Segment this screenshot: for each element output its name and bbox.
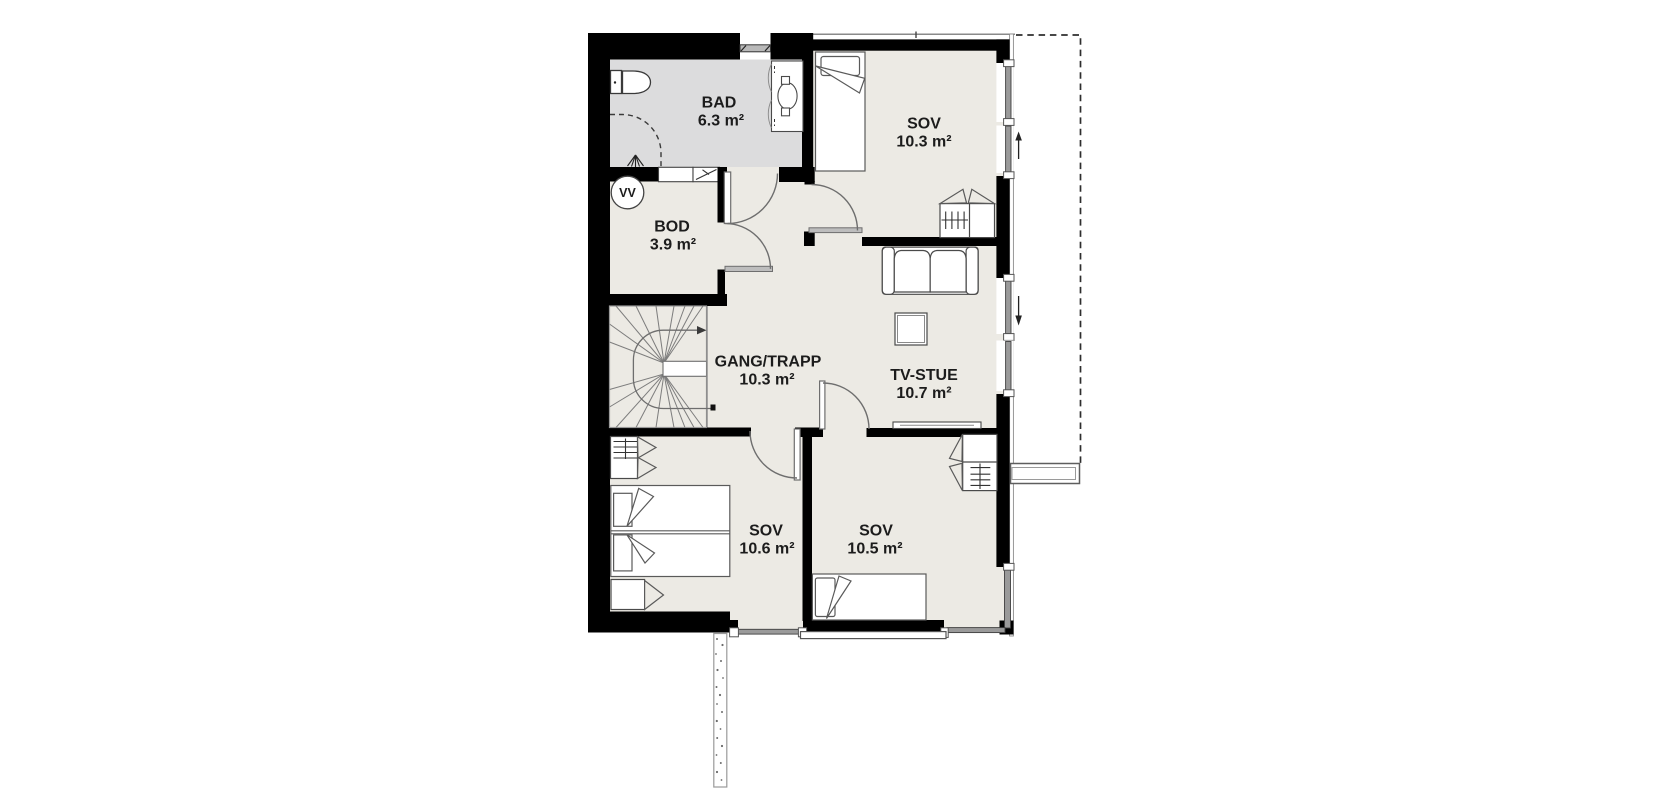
svg-text:BOD: BOD <box>654 219 690 236</box>
svg-text:GANG/TRAPP: GANG/TRAPP <box>715 354 822 371</box>
svg-text:TV-STUE: TV-STUE <box>890 367 958 384</box>
svg-text:6.3 m²: 6.3 m² <box>698 113 744 130</box>
svg-text:VV: VV <box>619 186 636 200</box>
svg-text:10.6 m²: 10.6 m² <box>739 541 794 558</box>
svg-text:10.3 m²: 10.3 m² <box>896 134 951 151</box>
svg-text:BAD: BAD <box>702 95 737 112</box>
svg-text:SOV: SOV <box>749 523 783 540</box>
svg-text:10.7 m²: 10.7 m² <box>896 385 951 402</box>
svg-text:10.3 m²: 10.3 m² <box>739 372 794 389</box>
svg-text:SOV: SOV <box>907 116 941 133</box>
svg-text:10.5 m²: 10.5 m² <box>847 541 902 558</box>
svg-text:SOV: SOV <box>859 523 893 540</box>
svg-text:3.9 m²: 3.9 m² <box>650 237 696 254</box>
